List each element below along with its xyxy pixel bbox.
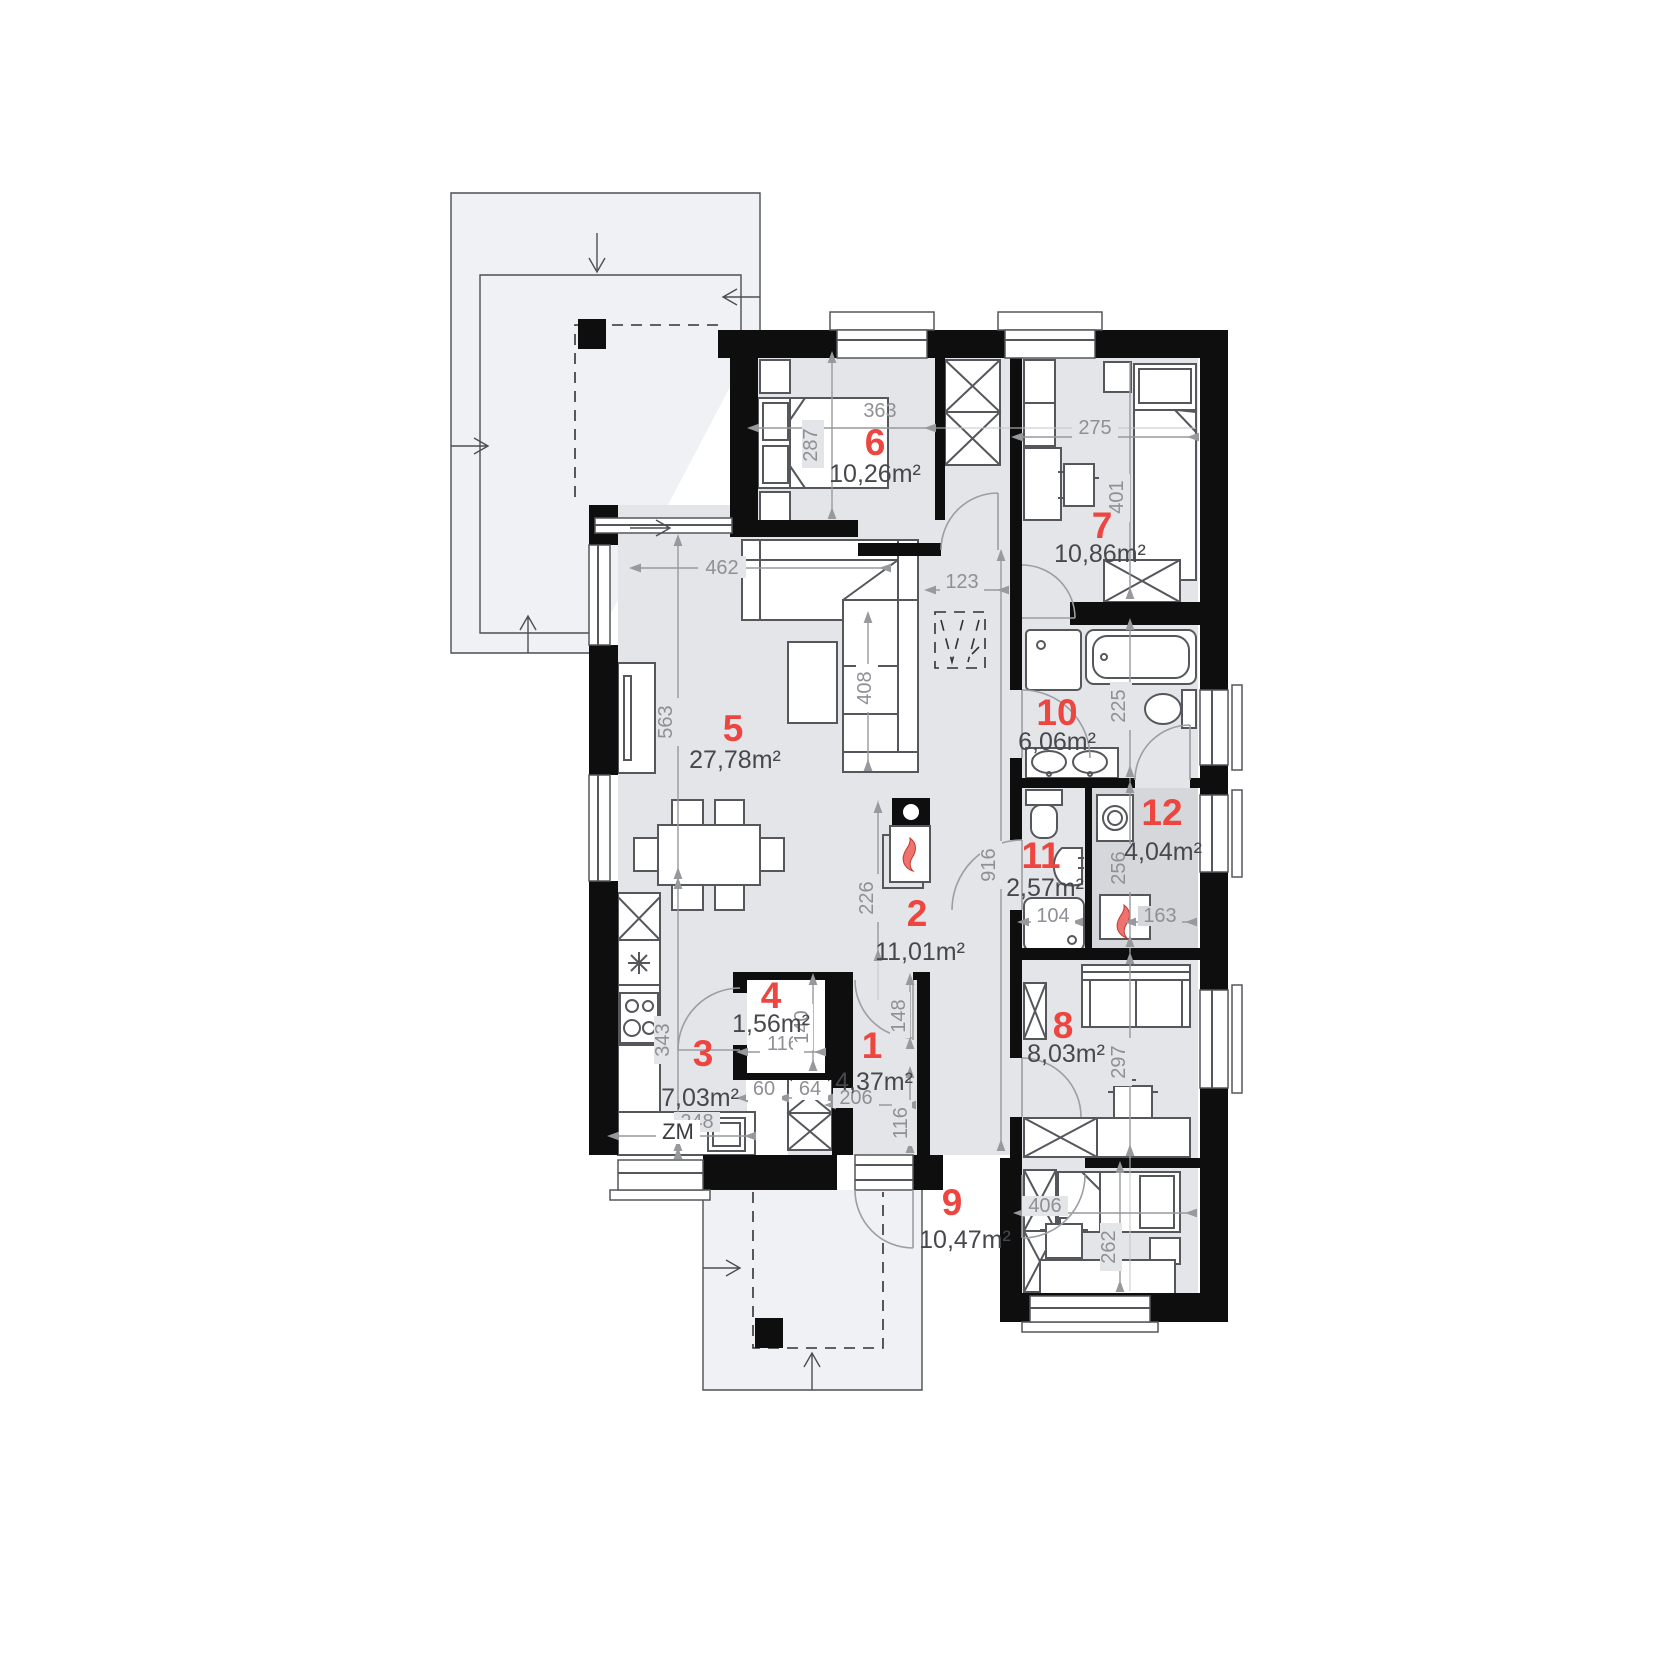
entrance-threshold xyxy=(855,1155,913,1190)
window-room9 xyxy=(1022,1296,1158,1332)
svg-text:27,78m²: 27,78m² xyxy=(689,746,781,774)
window-room6 xyxy=(830,312,934,358)
entry-porch xyxy=(703,1190,922,1390)
dim-room7-width: 275 xyxy=(1078,417,1111,439)
dim-room1-lower: 116 xyxy=(890,1107,912,1139)
dim-room6-width: 363 xyxy=(863,400,896,422)
shower-icon xyxy=(1026,630,1081,690)
svg-text:5: 5 xyxy=(723,708,744,749)
dim-kitchen-height: 343 xyxy=(652,1023,674,1056)
tv-cabinet-icon xyxy=(618,663,655,773)
floor-plan-drawing: 462 123 363 287 275 401 563 408 343 248 … xyxy=(0,0,1680,1680)
dim-niche-left: 60 xyxy=(753,1078,775,1100)
sofa-icon-room8 xyxy=(1082,965,1190,1027)
svg-text:2,57m²: 2,57m² xyxy=(1006,874,1084,902)
svg-text:6: 6 xyxy=(865,422,886,463)
dim-room1-upper: 148 xyxy=(888,999,910,1032)
dim-room9-width: 406 xyxy=(1028,1195,1061,1217)
porch-column xyxy=(755,1318,783,1348)
svg-text:4,37m²: 4,37m² xyxy=(835,1068,913,1096)
dim-living-width: 462 xyxy=(705,557,738,579)
svg-text:3: 3 xyxy=(693,1033,714,1074)
dim-room9-depth: 262 xyxy=(1098,1230,1120,1263)
dishwasher-label: ZM xyxy=(662,1119,694,1144)
window-kitchen xyxy=(610,1160,710,1200)
dim-room6-depth: 287 xyxy=(800,428,822,461)
svg-text:4,04m²: 4,04m² xyxy=(1124,838,1202,866)
dim-room8-depth: 297 xyxy=(1108,1045,1130,1078)
floor-plan-canvas: 462 123 363 287 275 401 563 408 343 248 … xyxy=(0,0,1680,1680)
svg-text:1,56m²: 1,56m² xyxy=(732,1010,810,1038)
dim-living-height: 563 xyxy=(655,705,677,738)
dim-room12-width: 163 xyxy=(1143,905,1176,927)
dim-fireplace-wall: 226 xyxy=(856,881,878,914)
svg-text:7,03m²: 7,03m² xyxy=(661,1084,739,1112)
room9-chair-icon xyxy=(1040,1218,1088,1258)
room8-wardrobe-icon xyxy=(1024,1118,1097,1157)
lobby-wardrobe-icon xyxy=(945,360,1000,465)
washing-machine-icon xyxy=(1097,795,1133,841)
toilet-icon-room11 xyxy=(1026,790,1062,838)
dim-room10-depth: 225 xyxy=(1108,689,1130,722)
dim-hall-length: 916 xyxy=(978,848,1000,881)
svg-text:1: 1 xyxy=(862,1025,883,1066)
window-room12 xyxy=(1200,790,1242,877)
terrace-column xyxy=(578,319,606,349)
window-living-left-2 xyxy=(589,775,610,881)
dim-sofa-length: 408 xyxy=(854,671,876,704)
sink-icon xyxy=(628,952,650,974)
svg-text:10,26m²: 10,26m² xyxy=(829,460,921,488)
svg-text:6,06m²: 6,06m² xyxy=(1018,728,1096,756)
svg-text:9: 9 xyxy=(942,1182,963,1223)
dim-niche-right: 64 xyxy=(799,1078,821,1100)
window-room10 xyxy=(1200,685,1242,770)
svg-text:8,03m²: 8,03m² xyxy=(1027,1040,1105,1068)
window-room7 xyxy=(998,312,1102,358)
svg-text:11,01m²: 11,01m² xyxy=(875,938,965,966)
svg-text:10,86m²: 10,86m² xyxy=(1054,540,1146,568)
room-9-label: 9 10,47m² xyxy=(919,1182,1011,1254)
toilet-icon-room10 xyxy=(1145,690,1196,728)
dim-hall-width: 123 xyxy=(945,571,978,593)
window-living-left-1 xyxy=(589,545,610,645)
coffee-table-icon xyxy=(788,642,837,723)
svg-text:12: 12 xyxy=(1141,792,1182,833)
svg-text:2: 2 xyxy=(907,893,928,934)
window-room8 xyxy=(1200,985,1242,1093)
dim-shower-width: 104 xyxy=(1036,905,1069,927)
room8-tall-wardrobe-icon xyxy=(1024,983,1046,1039)
svg-text:10,47m²: 10,47m² xyxy=(919,1226,1011,1254)
svg-text:10: 10 xyxy=(1036,692,1077,733)
bathtub-icon xyxy=(1086,630,1196,684)
room7-closet-icon xyxy=(1024,360,1055,446)
room8-desk-icon xyxy=(1097,1118,1190,1157)
window-living-top xyxy=(595,518,732,536)
svg-text:11: 11 xyxy=(1021,835,1060,876)
